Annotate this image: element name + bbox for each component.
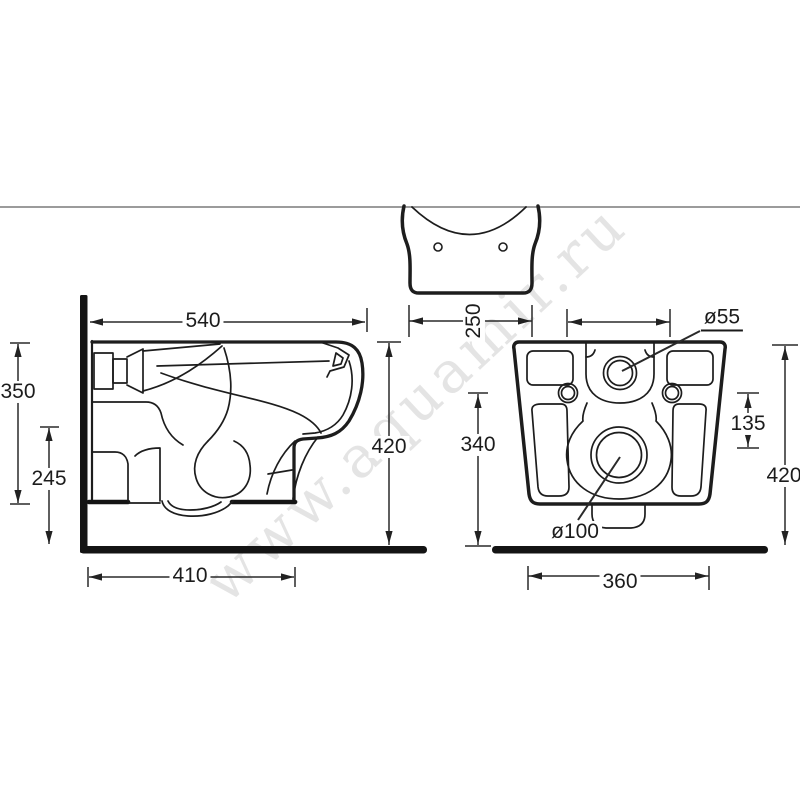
dim-label-350: 350 bbox=[0, 381, 39, 403]
dim-back-body-height-340 bbox=[465, 393, 491, 546]
dim-label-360: 360 bbox=[599, 571, 640, 593]
dim-back-overall-height-420 bbox=[772, 345, 798, 545]
dim-side-top-width-540 bbox=[90, 308, 367, 332]
dim-label-135: 135 bbox=[727, 413, 768, 435]
dim-label-340: 340 bbox=[457, 434, 498, 456]
dim-label-250: 250 bbox=[463, 300, 485, 341]
callout-leader-lines bbox=[578, 331, 700, 520]
side-view-section-details bbox=[92, 342, 352, 501]
back-view-outline bbox=[514, 342, 726, 528]
dim-label-420-left: 420 bbox=[368, 436, 409, 458]
back-view-floor bbox=[492, 546, 768, 554]
plan-view-outline bbox=[402, 206, 539, 293]
dim-label-540: 540 bbox=[182, 310, 223, 332]
dim-label-410: 410 bbox=[169, 565, 210, 587]
callout-label-outlet-diameter: ø100 bbox=[548, 521, 602, 543]
dim-back-bolt-span-unlabeled bbox=[567, 309, 670, 337]
toilet-dimension-drawing bbox=[0, 0, 800, 800]
side-view-outline bbox=[89, 341, 363, 516]
dim-label-245: 245 bbox=[28, 468, 69, 490]
side-view-wall-floor bbox=[80, 295, 427, 554]
technical-drawing-page: www.aquamir.ru bbox=[0, 0, 800, 800]
dim-label-420-right: 420 bbox=[763, 465, 800, 487]
callout-label-inlet-diameter: ø55 bbox=[701, 306, 743, 331]
back-view-details bbox=[527, 343, 713, 499]
dim-side-overall-height-350 bbox=[10, 343, 30, 504]
